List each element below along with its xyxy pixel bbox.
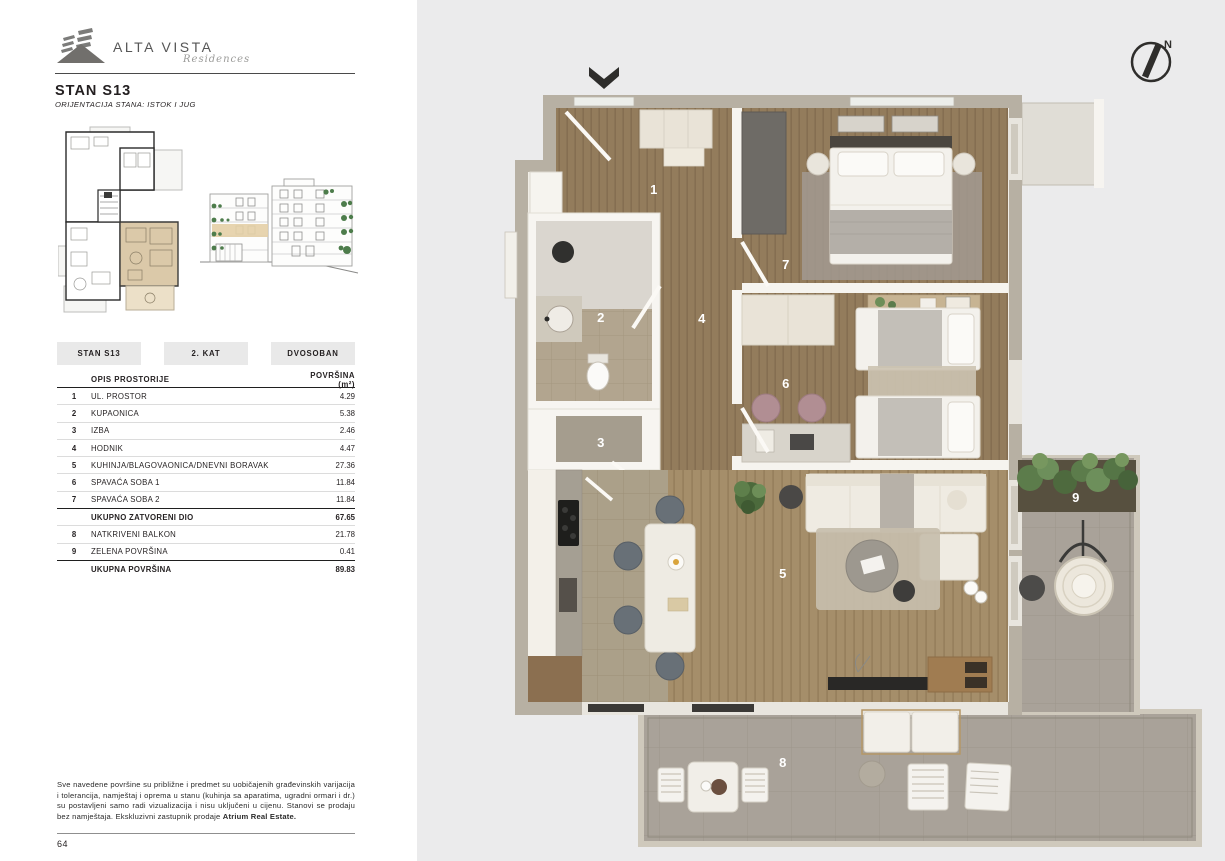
room-label-8: 8 bbox=[779, 755, 787, 770]
table-row: 7 SPAVAĆA SOBA 2 11.84 bbox=[57, 492, 355, 509]
table-row: 2 KUPAONICA 5.38 bbox=[57, 405, 355, 422]
room-label-2: 2 bbox=[597, 310, 605, 325]
kitchen-sink bbox=[559, 578, 577, 612]
nightstand bbox=[953, 153, 975, 175]
room-label-4: 4 bbox=[698, 311, 706, 326]
toilet bbox=[587, 362, 609, 390]
cooktop bbox=[558, 500, 579, 546]
table-row: 3 IZBA 2.46 bbox=[57, 423, 355, 440]
page-number: 64 bbox=[57, 839, 68, 849]
mirror bbox=[552, 241, 574, 263]
dining-chair bbox=[614, 542, 642, 570]
page-title: STAN S13 bbox=[55, 83, 131, 99]
room-living-kitchen bbox=[528, 470, 1022, 715]
dining-table bbox=[645, 524, 695, 652]
french-balcony bbox=[1022, 99, 1104, 188]
logo: ALTA VISTA Residences bbox=[55, 26, 355, 70]
col-area-header: POVRŠINA (m²) bbox=[293, 371, 355, 389]
outdoor-chair bbox=[658, 768, 684, 802]
brand-tagline: Residences bbox=[183, 54, 250, 65]
room-bathroom bbox=[528, 213, 660, 409]
table-row: 1 UL. PROSTOR 4.29 bbox=[57, 388, 355, 405]
outdoor-side-table bbox=[859, 761, 885, 787]
table-row: 4 HODNIK 4.47 bbox=[57, 440, 355, 457]
brand-name: ALTA VISTA bbox=[113, 39, 213, 55]
highlighted-balcony bbox=[126, 286, 174, 310]
table-header: OPIS PROSTORIJE POVRŠINA (m²) bbox=[57, 372, 355, 388]
disclaimer: Sve navedene površine su približne i pre… bbox=[57, 780, 355, 822]
total-row: UKUPNA POVRŠINA 89.83 bbox=[57, 560, 355, 577]
lounge-cushion bbox=[864, 712, 910, 752]
outdoor-chair bbox=[742, 768, 768, 802]
blanket bbox=[830, 210, 952, 254]
agent-name: Atrium Real Estate. bbox=[223, 812, 296, 821]
brochure-page: 1 2 3 4 5 6 7 8 9 N bbox=[0, 0, 1225, 861]
room-label-6: 6 bbox=[782, 376, 790, 391]
room-label-9: 9 bbox=[1072, 490, 1080, 505]
nightstand bbox=[807, 153, 829, 175]
room-label-7: 7 bbox=[782, 257, 790, 272]
sink bbox=[547, 306, 573, 332]
elevation-image bbox=[196, 172, 361, 284]
sun-lounger bbox=[908, 764, 948, 810]
disclaimer-text: Sve navedene površine su približne i pre… bbox=[57, 780, 355, 821]
unit-badges: STAN S13 2. KAT DVOSOBAN bbox=[57, 342, 355, 365]
table-row: 6 SPAVAĆA SOBA 1 11.84 bbox=[57, 474, 355, 491]
keyplan-image bbox=[58, 126, 190, 316]
room-label-3: 3 bbox=[597, 435, 605, 450]
highlighted-unit bbox=[120, 222, 178, 286]
room-label-1: 1 bbox=[650, 182, 658, 197]
footer-divider bbox=[57, 833, 355, 834]
stool bbox=[893, 580, 915, 602]
room-label-5: 5 bbox=[779, 566, 787, 581]
dining-chair bbox=[656, 496, 684, 524]
kitchen-base-cabinet bbox=[528, 656, 582, 702]
alta-vista-logo-icon bbox=[55, 26, 107, 70]
badge-type: DVOSOBAN bbox=[271, 342, 355, 365]
desk-chair bbox=[752, 394, 780, 422]
lounge-cushion bbox=[912, 712, 958, 752]
side-table bbox=[779, 485, 803, 509]
sun-lounger bbox=[965, 763, 1011, 811]
col-room-header: OPIS PROSTORIJE bbox=[91, 375, 293, 384]
table-row: 8 NATKRIVENI BALKON 21.78 bbox=[57, 526, 355, 543]
subtotal-row: UKUPNO ZATVORENI DIO 67.65 bbox=[57, 508, 355, 526]
header-divider bbox=[55, 73, 355, 74]
throw-blanket bbox=[880, 474, 914, 532]
wardrobe bbox=[742, 112, 786, 234]
badge-floor: 2. KAT bbox=[164, 342, 248, 365]
rug-2 bbox=[868, 366, 976, 400]
area-table: OPIS PROSTORIJE POVRŠINA (m²) 1 UL. PROS… bbox=[57, 372, 355, 577]
dining-chair bbox=[614, 606, 642, 634]
compass-label: N bbox=[1164, 39, 1172, 51]
dining-chair bbox=[656, 652, 684, 680]
orientation-subtitle: ORIJENTACIJA STANA: ISTOK I JUG bbox=[55, 100, 196, 109]
wall-light bbox=[1019, 575, 1045, 601]
badge-unit: STAN S13 bbox=[57, 342, 141, 365]
table-row: 5 KUHINJA/BLAGOVAONICA/DNEVNI BORAVAK 27… bbox=[57, 457, 355, 474]
desk-chair bbox=[798, 394, 826, 422]
kitchen-counter bbox=[556, 470, 582, 658]
table-row: 9 ZELENA POVRŠINA 0.41 bbox=[57, 544, 355, 561]
floor-lamp bbox=[964, 581, 978, 595]
headboard bbox=[830, 136, 952, 148]
info-panel: ALTA VISTA Residences STAN S13 ORIJENTAC… bbox=[0, 0, 417, 861]
